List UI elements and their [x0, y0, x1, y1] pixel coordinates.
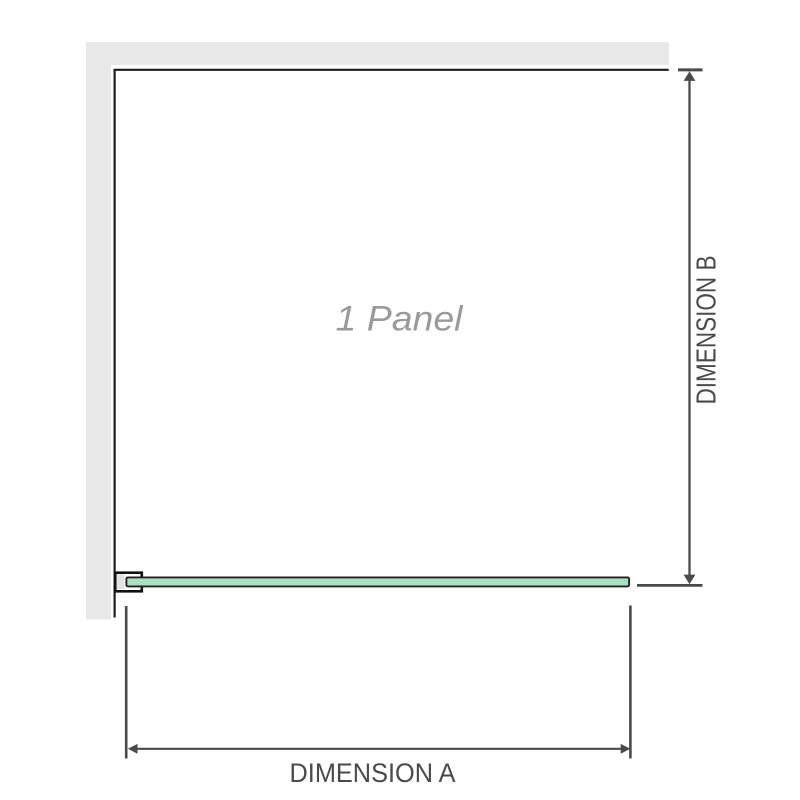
svg-text:DIMENSION A: DIMENSION A: [290, 758, 456, 788]
svg-text:DIMENSION B: DIMENSION B: [691, 256, 722, 405]
svg-text:1 Panel: 1 Panel: [336, 300, 464, 339]
